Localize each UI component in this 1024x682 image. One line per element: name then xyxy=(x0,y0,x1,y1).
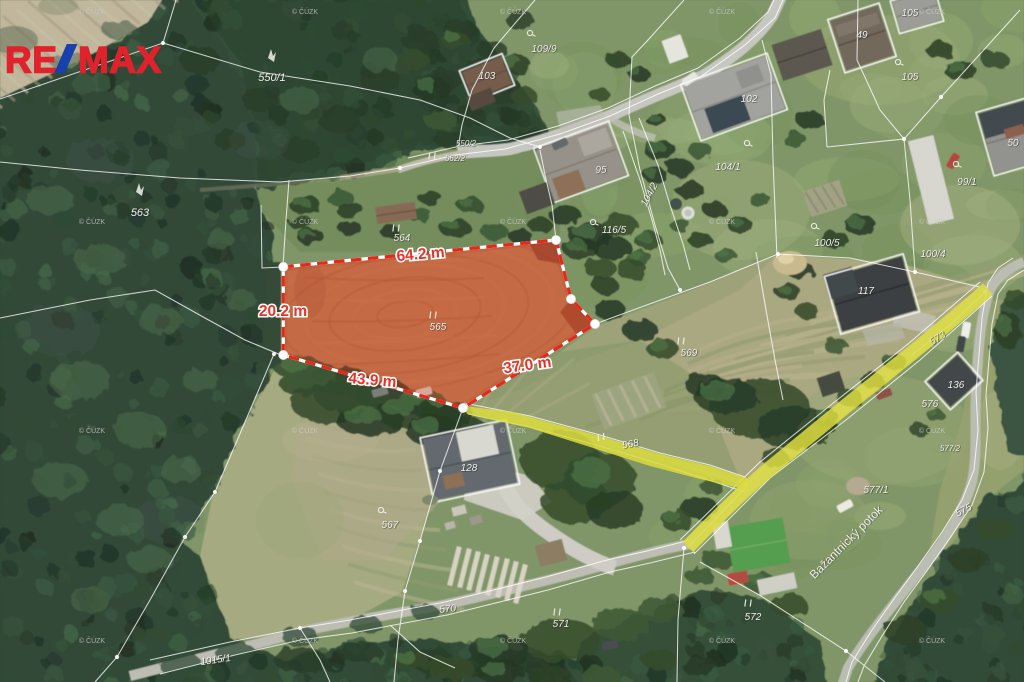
svg-text:136: 136 xyxy=(948,380,965,391)
svg-text:© ČÚZK: © ČÚZK xyxy=(919,426,945,435)
svg-text:20.2 m: 20.2 m xyxy=(259,303,307,320)
svg-text:© ČÚZK: © ČÚZK xyxy=(919,217,945,226)
svg-text:577/2: 577/2 xyxy=(940,444,961,453)
svg-text:© ČÚZK: © ČÚZK xyxy=(292,426,318,435)
svg-text:564: 564 xyxy=(394,233,411,244)
svg-text:© ČÚZK: © ČÚZK xyxy=(292,7,318,16)
svg-text:95: 95 xyxy=(595,165,607,176)
svg-text:© ČÚZK: © ČÚZK xyxy=(709,7,735,16)
svg-text:105: 105 xyxy=(902,8,919,19)
svg-text:© ČÚZK: © ČÚZK xyxy=(500,636,526,645)
svg-text:565: 565 xyxy=(430,322,447,333)
svg-text:102: 102 xyxy=(741,94,758,105)
svg-text:© ČÚZK: © ČÚZK xyxy=(79,217,105,226)
svg-text:© ČÚZK: © ČÚZK xyxy=(292,217,318,226)
svg-text:550/2: 550/2 xyxy=(456,139,477,148)
svg-text:© ČÚZK: © ČÚZK xyxy=(709,217,735,226)
svg-text:© ČÚZK: © ČÚZK xyxy=(500,7,526,16)
svg-text:576: 576 xyxy=(922,399,939,410)
svg-text:© ČÚZK: © ČÚZK xyxy=(292,636,318,645)
svg-text:© ČÚZK: © ČÚZK xyxy=(919,636,945,645)
svg-text:49: 49 xyxy=(856,30,868,41)
svg-text:563: 563 xyxy=(131,207,150,219)
svg-text:128: 128 xyxy=(461,463,478,474)
svg-text:MAX: MAX xyxy=(78,40,162,81)
svg-text:100/5: 100/5 xyxy=(814,238,839,249)
svg-text:103: 103 xyxy=(479,71,496,82)
svg-text:99/1: 99/1 xyxy=(957,177,976,188)
svg-text:© ČÚZK: © ČÚZK xyxy=(709,636,735,645)
svg-text:567: 567 xyxy=(382,520,399,531)
svg-text:571: 571 xyxy=(553,619,570,630)
svg-text:© ČÚZK: © ČÚZK xyxy=(709,426,735,435)
svg-text:109/9: 109/9 xyxy=(531,44,556,55)
svg-text:105: 105 xyxy=(902,72,919,83)
svg-text:550/1: 550/1 xyxy=(258,72,286,84)
svg-text:577/1: 577/1 xyxy=(863,485,888,496)
svg-text:© ČÚZK: © ČÚZK xyxy=(500,217,526,226)
svg-text:117: 117 xyxy=(858,286,874,297)
svg-text:© ČÚZK: © ČÚZK xyxy=(79,426,105,435)
svg-text:570: 570 xyxy=(439,603,457,616)
svg-text:562/2: 562/2 xyxy=(445,154,466,163)
svg-text:100/4: 100/4 xyxy=(920,249,945,260)
svg-text:572: 572 xyxy=(745,612,762,623)
svg-text:RE: RE xyxy=(5,40,57,81)
svg-text:569: 569 xyxy=(681,348,698,359)
svg-text:© ČÚZK: © ČÚZK xyxy=(919,7,945,16)
svg-text:© ČÚZK: © ČÚZK xyxy=(500,426,526,435)
svg-text:116/5: 116/5 xyxy=(602,225,627,236)
svg-text:© ČÚZK: © ČÚZK xyxy=(79,7,105,16)
svg-text:104/1: 104/1 xyxy=(715,162,740,173)
svg-text:50: 50 xyxy=(1007,138,1019,149)
svg-text:© ČÚZK: © ČÚZK xyxy=(79,636,105,645)
